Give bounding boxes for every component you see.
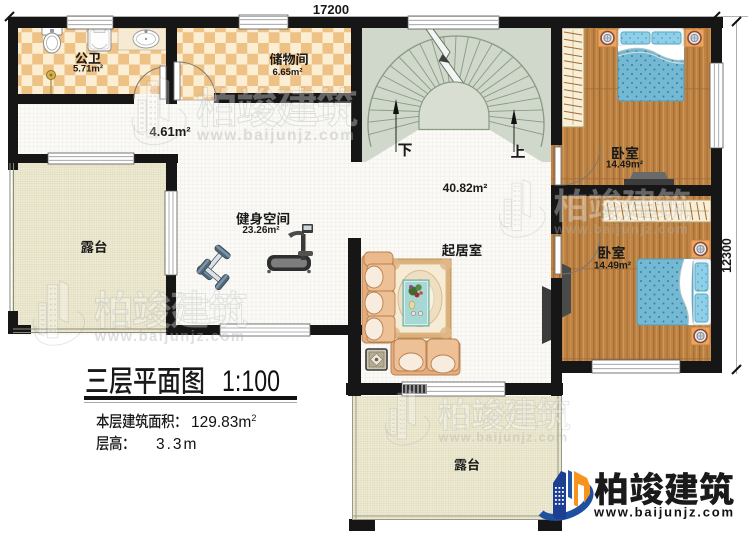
svg-text:14.49m²: 14.49m² [594,261,632,272]
svg-text:www.baijunjz.com: www.baijunjz.com [553,221,688,236]
svg-text:www.baijunjz.com: www.baijunjz.com [196,127,355,144]
svg-text:14.49m²: 14.49m² [606,160,644,171]
svg-text:23.26m²: 23.26m² [242,225,280,236]
svg-text:40.82m²: 40.82m² [443,181,488,195]
svg-text:www.baijunjz.com: www.baijunjz.com [94,329,245,345]
svg-text:6.65m²: 6.65m² [272,67,302,78]
svg-text:3.3m: 3.3m [156,436,198,453]
svg-text:1:100: 1:100 [222,365,280,398]
svg-text:129.83m2: 129.83m2 [191,413,256,431]
svg-text:www.baijunjz.com: www.baijunjz.com [437,429,568,444]
svg-text:5.71m²: 5.71m² [73,64,103,75]
svg-text:www.baijunjz.com: www.baijunjz.com [593,505,734,520]
svg-text:12300: 12300 [720,238,734,273]
svg-text:17200: 17200 [313,2,349,17]
